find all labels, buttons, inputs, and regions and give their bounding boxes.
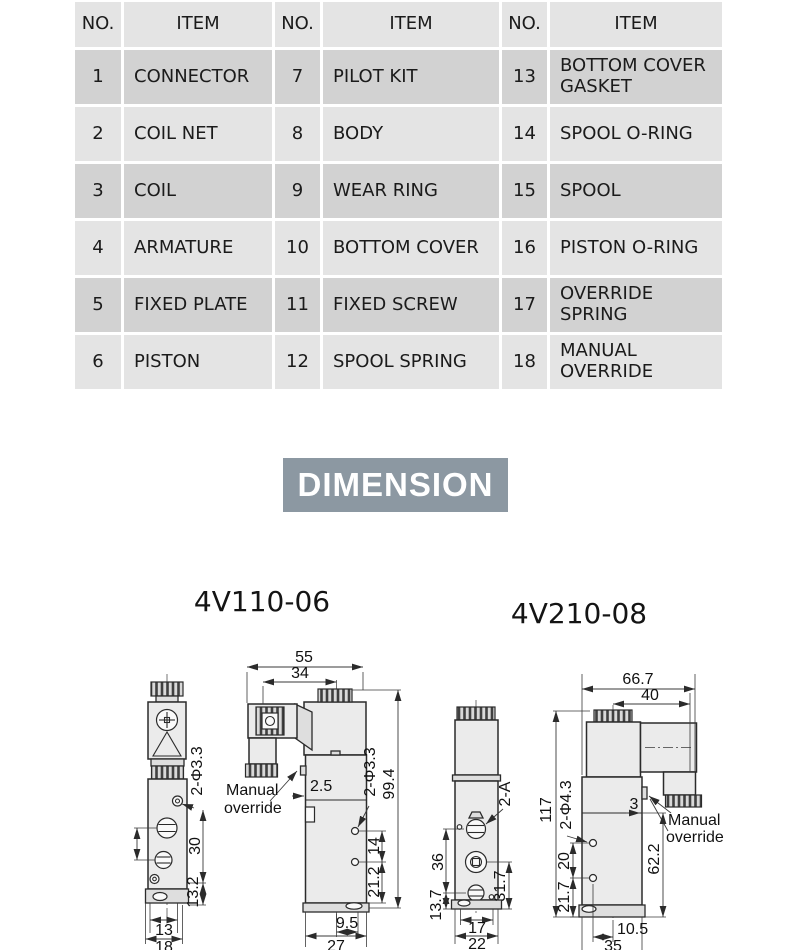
valve-4v110-front-view: 2-Φ3.3 30 13.2 13 18 [134,674,206,950]
part-item: PILOT KIT [323,50,499,104]
parts-table: NO. ITEM NO. ITEM NO. ITEM 1 CONNECTOR 7… [75,2,722,389]
dim-label-13: 13 [155,922,173,939]
part-item: BOTTOM COVER [323,221,499,275]
top-cap-knurl [594,710,632,722]
mounting-nut-knurl [152,766,184,779]
valve-4v210-front-view: 2-A 36 13.7 31.7 17 22 [428,700,514,950]
part-no: 3 [75,164,121,218]
dim-label-18: 18 [155,939,173,950]
dimension-drawings: 2-Φ3.3 30 13.2 13 18 [0,560,790,950]
part-no: 13 [502,50,547,104]
part-no: 17 [502,278,547,332]
connector-stem [249,738,276,764]
manual-override-button [642,787,647,799]
part-item: CONNECTOR [124,50,272,104]
part-no: 9 [275,164,320,218]
part-item: COIL NET [124,107,272,161]
dim-label-55: 55 [295,649,313,666]
cable-gland-knurl [666,795,702,807]
dim-label-40: 40 [641,687,659,704]
port-circle [157,818,177,838]
col-header-item: ITEM [550,2,722,47]
part-no: 6 [75,335,121,389]
mounting-hole [352,859,359,866]
dim-label-99-4: 99.4 [381,768,398,799]
mid-collar [151,759,184,766]
dim-label-17: 17 [468,920,486,937]
dim-label-31-7: 31.7 [492,870,509,901]
part-no: 5 [75,278,121,332]
part-item: FIXED PLATE [124,278,272,332]
coil-body [455,720,498,775]
top-cap-knurl [151,682,183,696]
dim-label-34: 34 [291,665,309,682]
port-circle [468,885,484,901]
dim-label-66-7: 66.7 [622,671,653,688]
manual-override-label: Manual [226,782,278,799]
dimension-section-banner: DIMENSION [283,458,508,512]
part-item: BODY [323,107,499,161]
part-no: 11 [275,278,320,332]
dim-label-27: 27 [327,938,345,950]
dim-label-35: 35 [604,938,622,950]
dim-label-holes: 2-Φ3.3 [189,746,206,795]
part-item: COIL [124,164,272,218]
dim-label-62-2: 62.2 [646,843,663,874]
part-no: 18 [502,335,547,389]
part-no: 10 [275,221,320,275]
part-item: SPOOL SPRING [323,335,499,389]
mounting-hole [590,875,597,882]
flange-notch [582,906,596,913]
part-no: 1 [75,50,121,104]
part-item: SPOOL O-RING [550,107,722,161]
dim-label-20: 20 [556,852,573,870]
body-tab [469,812,483,818]
flange-notch [346,903,362,909]
page: NO. ITEM NO. ITEM NO. ITEM 1 CONNECTOR 7… [0,0,790,950]
flange-notch [458,900,470,906]
dim-label-13-2: 13.2 [185,876,202,907]
part-item: SPOOL [550,164,722,218]
part-no: 12 [275,335,320,389]
manual-override-button [301,766,307,775]
dim-label-13-7: 13.7 [428,889,445,920]
top-cap-knurl [457,707,495,720]
manual-override-label: override [224,800,282,817]
col-header-item: ITEM [323,2,499,47]
part-item: BOTTOM COVER GASKET [550,50,722,104]
cable-gland-knurl [246,764,278,777]
port-circle [466,852,487,873]
dim-label-2-5: 2.5 [310,778,332,795]
valve-4v210-side-view: 66.7 40 117 2-Φ4.3 3 Manual override 62.… [538,671,724,950]
dim-label-10-5: 10.5 [617,921,648,938]
dim-label-14: 14 [366,837,383,855]
top-cap-knurl [318,689,352,702]
col-header-no: NO. [275,2,320,47]
mounting-hole [352,828,359,835]
dim-label-2a: 2-A [497,781,514,806]
dim-label-21-7: 21.7 [556,881,573,912]
part-item: ARMATURE [124,221,272,275]
dim-label-36: 36 [430,853,447,871]
part-no: 14 [502,107,547,161]
dim-label-117: 117 [538,797,555,823]
part-no: 15 [502,164,547,218]
body-top-tab [331,751,340,755]
dim-label-21-2: 21.2 [366,866,383,897]
flange-notch [153,893,167,901]
manual-override-label: override [666,829,724,846]
part-item: OVERRIDE SPRING [550,278,722,332]
port-circle [155,852,172,869]
dim-label-holes: 2-Φ3.3 [362,747,379,796]
part-item: FIXED SCREW [323,278,499,332]
part-item: WEAR RING [323,164,499,218]
pilot-hole [150,875,159,884]
part-no: 7 [275,50,320,104]
col-header-no: NO. [502,2,547,47]
mounting-hole [590,840,597,847]
pilot-hole [173,796,183,806]
part-no: 8 [275,107,320,161]
part-item: MANUAL OVERRIDE [550,335,722,389]
collar [453,775,501,781]
valve-4v110-side-view: 55 34 Manual override 2.5 2-Φ3.3 99.4 14… [224,649,401,950]
col-header-no: NO. [75,2,121,47]
manual-override-label: Manual [668,812,720,829]
col-header-item: ITEM [124,2,272,47]
dim-label-9-5: 9.5 [336,915,358,932]
coil-body [304,702,366,755]
body-notch [306,807,315,822]
coil-body [587,722,641,777]
dim-label-3: 3 [630,796,639,813]
dim-label-holes: 2-Φ4.3 [558,780,575,829]
dim-label-30: 30 [187,837,204,855]
dim-label-22: 22 [468,936,486,950]
collar [156,696,178,702]
port-circle [467,820,486,839]
part-no: 4 [75,221,121,275]
connector-stem [664,772,696,795]
part-item: PISTON [124,335,272,389]
part-no: 2 [75,107,121,161]
part-no: 16 [502,221,547,275]
part-item: PISTON O-RING [550,221,722,275]
